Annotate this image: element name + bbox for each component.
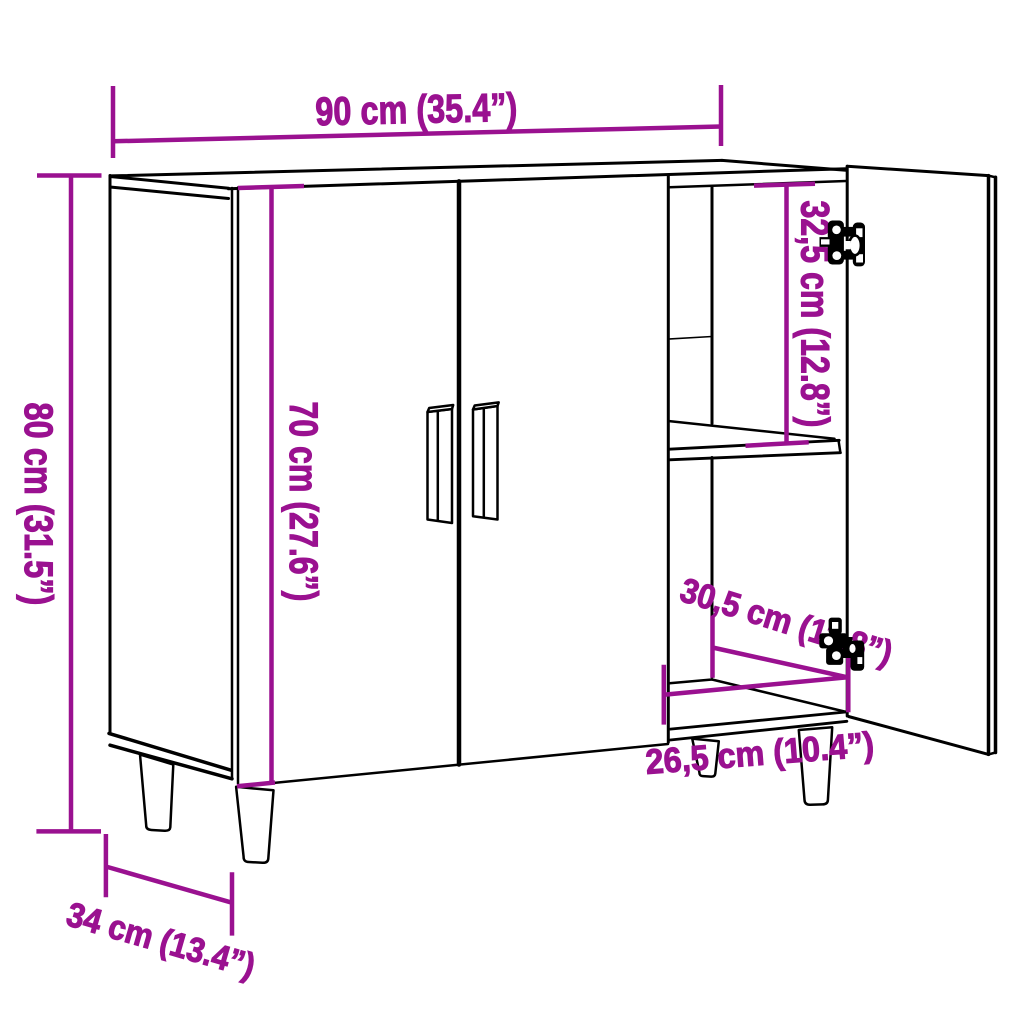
svg-text:80 cm (31.5”): 80 cm (31.5”)	[16, 402, 60, 605]
svg-text:90 cm (35.4”): 90 cm (35.4”)	[315, 86, 518, 135]
svg-text:70 cm (27.6”): 70 cm (27.6”)	[281, 401, 325, 601]
